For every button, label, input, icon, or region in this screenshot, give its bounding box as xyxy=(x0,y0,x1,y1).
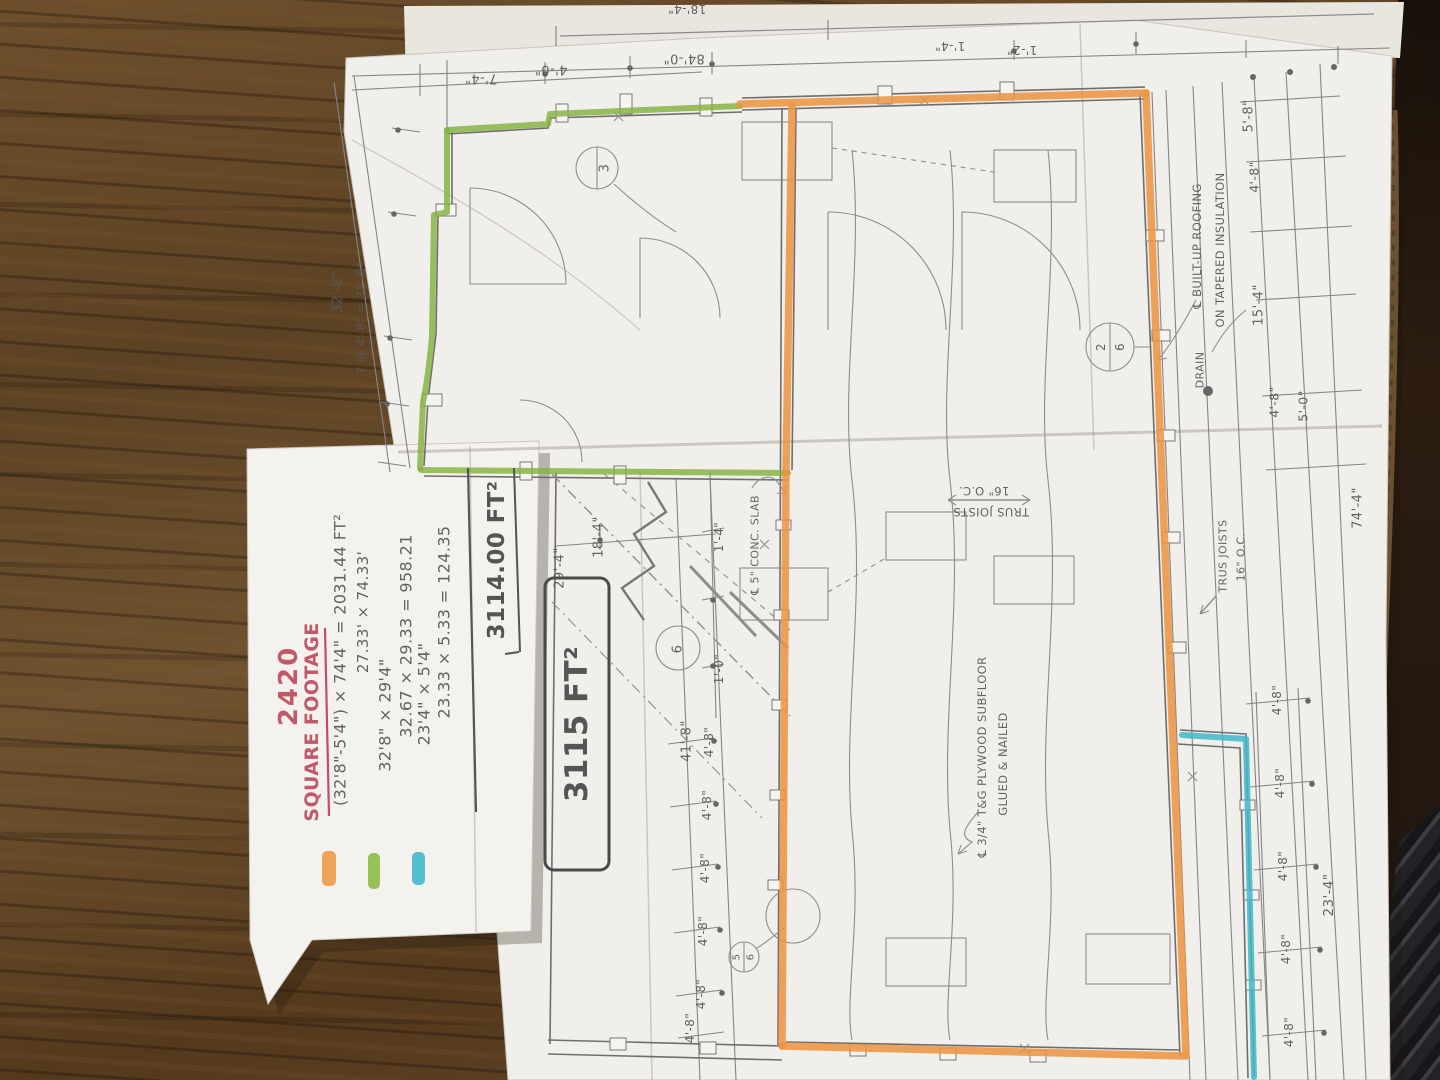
dim-label: 4'-8" xyxy=(696,916,710,946)
tag-number: 5 xyxy=(732,954,743,961)
green-swatch-icon xyxy=(368,853,380,889)
orange-swatch-icon xyxy=(322,851,336,886)
builtup-roofing-note: ℄ BUILT-UP ROOFING xyxy=(1190,183,1204,309)
joist-spacing-note: 16" O.C. xyxy=(1235,533,1248,582)
dim-label: 4'-8" xyxy=(698,853,712,883)
calc-line-2a: 32'8" × 29'4" xyxy=(376,658,395,771)
dim-label: 1'-4" xyxy=(935,39,965,53)
tapered-insulation-note: ON TAPERED INSULATION xyxy=(1213,172,1227,327)
tag-number: 2 xyxy=(1094,343,1108,351)
dim-label: 29'-4" xyxy=(553,547,568,588)
dim-label: 4'-8" xyxy=(1273,768,1287,798)
sqft-note-title: SQUARE FOOTAGE xyxy=(301,622,323,821)
dim-label: 4'-8" xyxy=(1270,685,1284,715)
dim-label: 84'-0" xyxy=(663,51,704,66)
dim-label: 1'-4" xyxy=(712,522,726,552)
dim-label: 7'-4" xyxy=(465,71,498,86)
dim-label: 74'-4" xyxy=(1351,487,1366,528)
dim-label: 4'-8" xyxy=(1279,934,1293,964)
dim-label: 41'-8" xyxy=(680,720,695,761)
total-square-footage: 3114.00 FT² xyxy=(484,481,510,640)
dim-label: 18'-4" xyxy=(592,516,607,557)
dim-label: 5'-8" xyxy=(1242,100,1257,133)
tag-number: 6 xyxy=(671,645,686,654)
dim-label: 1'-2" xyxy=(1007,43,1037,57)
dim-label: 23'-4" xyxy=(1321,874,1337,917)
dim-label: 4'-8" xyxy=(700,790,714,820)
truss-joists-note: TRUS JOISTS xyxy=(953,505,1029,519)
tag-number: 6 xyxy=(746,954,757,961)
total-rounded-boxed: 3115 FT² xyxy=(559,646,595,802)
concrete-slab-note: ℄ 5" CONC. SLAB xyxy=(749,495,762,595)
drain-note: DRAIN xyxy=(1194,352,1207,389)
plywood-subfloor-note: ℄ 3/4" T&G PLYWOOD SUBFLOOR xyxy=(975,657,989,858)
dim-label: 4'-8" xyxy=(1282,1017,1296,1047)
dim-label: 7 @ 4'-8" = 32'-8" xyxy=(354,262,368,374)
glued-nailed-note: GLUED & NAILED xyxy=(996,712,1010,816)
calc-line-1b: 27.33' × 74.33' xyxy=(354,551,372,673)
dim-label: 1'-0" xyxy=(712,654,726,684)
calc-line-1a: (32'8"-5'4") × 74'4" = 2031.44 FT² xyxy=(331,514,350,806)
sqft-note-number: 2420 xyxy=(274,646,304,726)
dim-label: 4'-8" xyxy=(702,727,716,757)
dim-label: 4'-8" xyxy=(694,979,708,1009)
tag-number: 3 xyxy=(598,164,613,173)
dim-label: 32'-8" xyxy=(331,271,346,312)
calc-line-2b: 32.67 × 29.33 = 958.21 xyxy=(397,534,416,738)
calc-line-3b: 23.33 × 5.33 = 124.35 xyxy=(435,526,454,719)
blue-swatch-icon xyxy=(412,852,425,885)
dim-label: 4'-0" xyxy=(535,62,568,77)
calc-line-3a: 23'4" × 5'4" xyxy=(415,643,434,746)
dim-label: 15'-4" xyxy=(1252,284,1267,325)
dim-label: 4'-8" xyxy=(1247,161,1262,193)
photo-of-floor-plan: 2420 SQUARE FOOTAGE (32'8"-5'4") × 74'4"… xyxy=(0,0,1440,1080)
dim-label: 5'-0" xyxy=(1296,390,1311,422)
tag-number: 6 xyxy=(1113,343,1127,351)
paper-sheets xyxy=(247,2,1405,1080)
dim-label: 4'-8" xyxy=(683,1013,697,1043)
dim-label: 4'-8" xyxy=(1276,851,1290,881)
dim-label: 18'-4" xyxy=(668,2,706,16)
truss-joists-note: TRUS JOISTS xyxy=(1217,519,1230,592)
dim-label: 4'-8" xyxy=(1267,386,1282,418)
joist-spacing-note: 16" O.C. xyxy=(959,484,1010,498)
